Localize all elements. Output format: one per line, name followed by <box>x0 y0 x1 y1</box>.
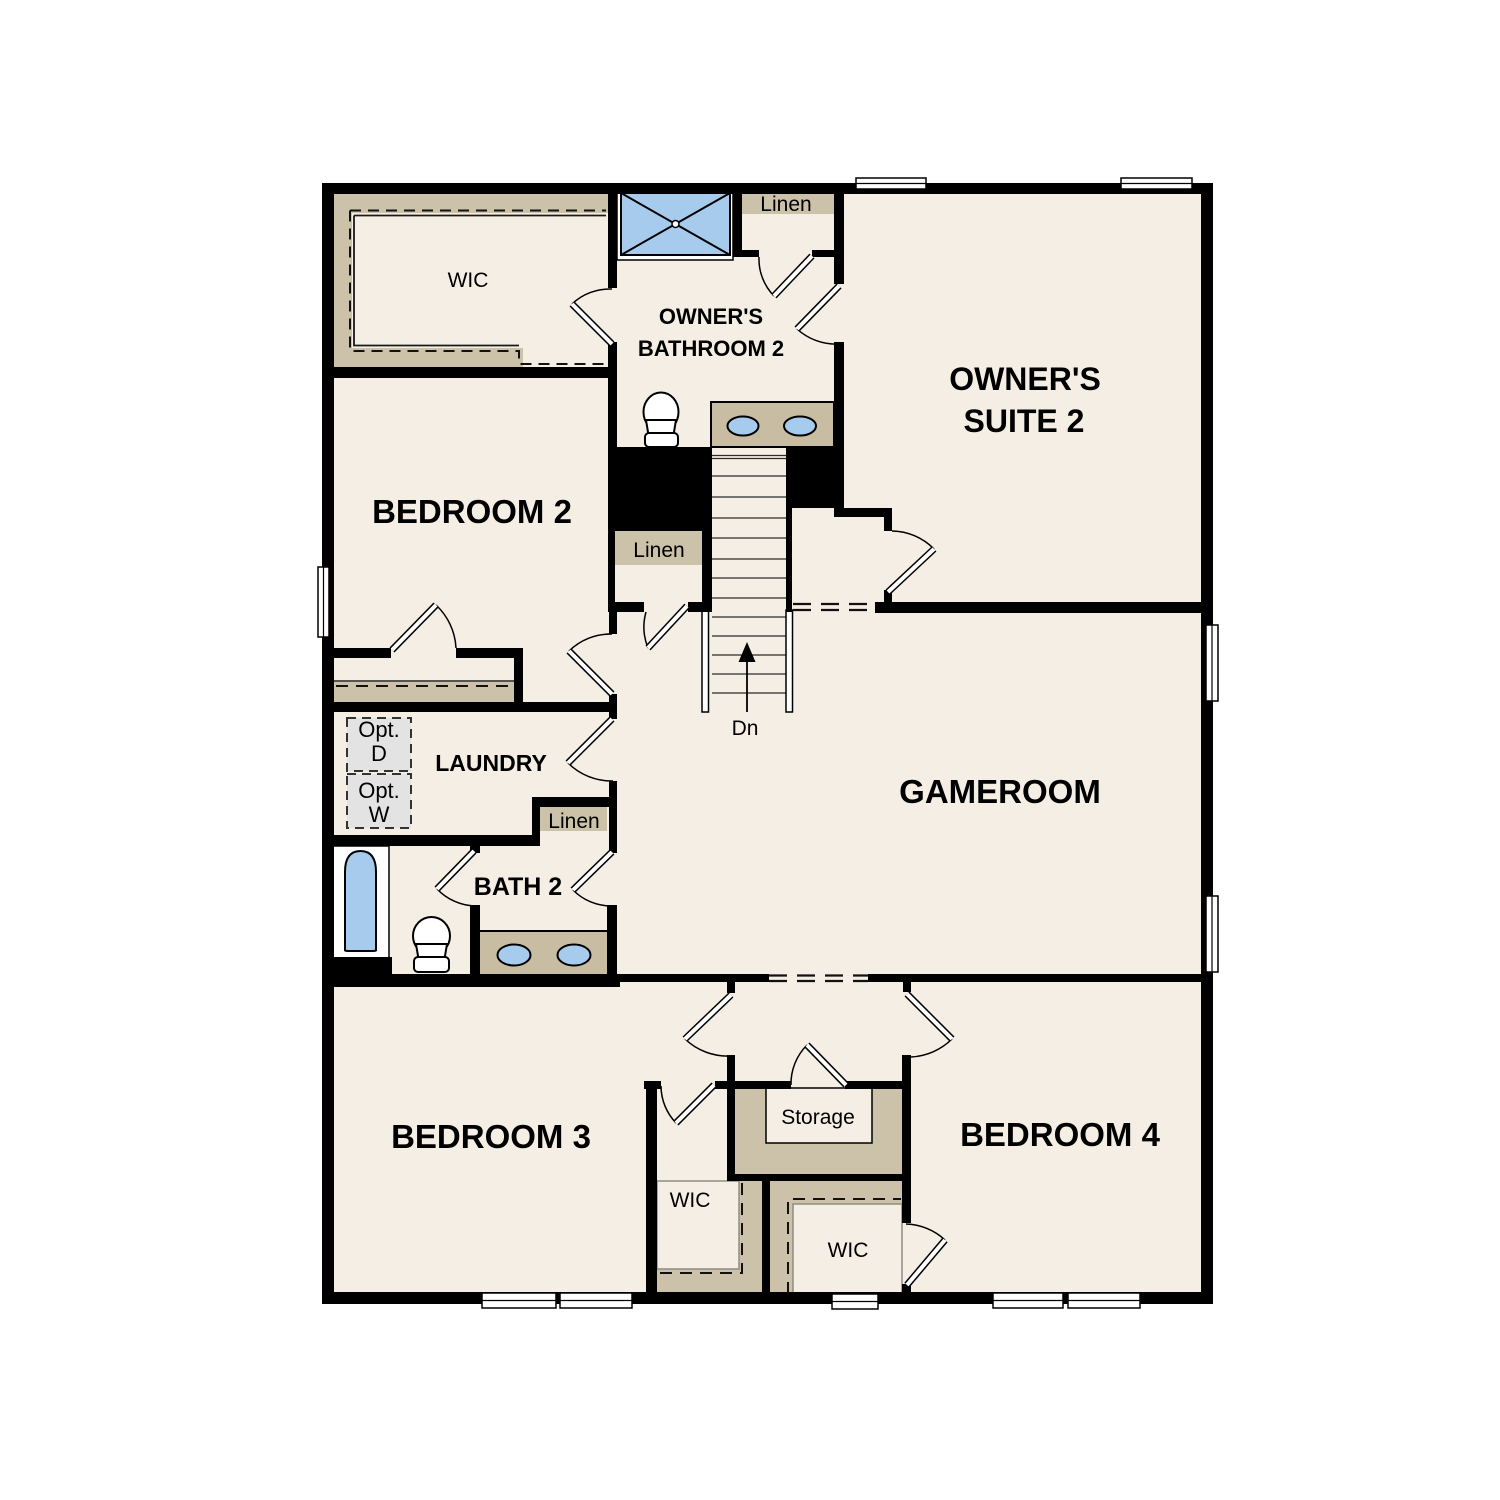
svg-text:BATHROOM 2: BATHROOM 2 <box>638 336 784 361</box>
svg-text:LAUNDRY: LAUNDRY <box>435 750 547 776</box>
svg-text:BATH 2: BATH 2 <box>474 873 562 901</box>
svg-text:W: W <box>369 802 390 827</box>
svg-text:Linen: Linen <box>760 193 811 216</box>
svg-text:BEDROOM 4: BEDROOM 4 <box>960 1116 1161 1153</box>
svg-text:WIC: WIC <box>448 269 489 292</box>
svg-text:Storage: Storage <box>781 1106 855 1129</box>
svg-text:OWNER'S: OWNER'S <box>659 304 763 329</box>
svg-text:OWNER'S: OWNER'S <box>949 361 1101 397</box>
svg-text:Opt.: Opt. <box>358 778 400 803</box>
svg-text:WIC: WIC <box>670 1189 711 1212</box>
svg-text:Dn: Dn <box>732 717 759 740</box>
svg-text:Linen: Linen <box>548 810 599 833</box>
svg-text:SUITE 2: SUITE 2 <box>964 403 1085 439</box>
svg-text:Linen: Linen <box>633 539 684 562</box>
svg-text:Opt.: Opt. <box>358 717 400 742</box>
svg-text:GAMEROOM: GAMEROOM <box>899 773 1101 810</box>
svg-text:BEDROOM 3: BEDROOM 3 <box>391 1118 591 1155</box>
svg-text:BEDROOM 2: BEDROOM 2 <box>372 493 572 530</box>
svg-text:D: D <box>371 741 387 766</box>
svg-text:WIC: WIC <box>828 1239 869 1262</box>
